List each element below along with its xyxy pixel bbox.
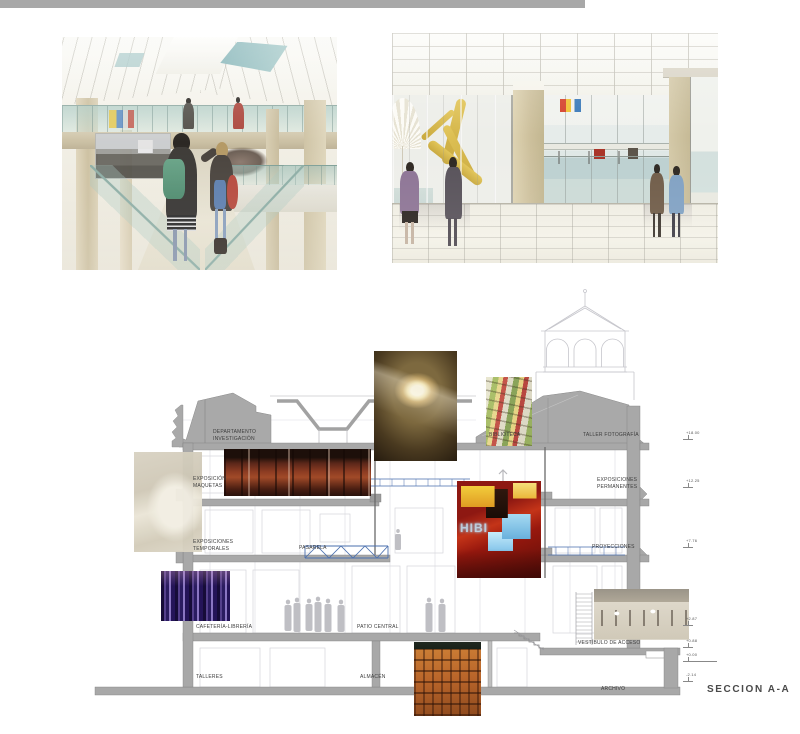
elevation-tick-icon bbox=[683, 483, 693, 488]
photo-exhibition-lightboxes: HIBI bbox=[457, 481, 541, 578]
label-archivo: ARCHIVO bbox=[601, 686, 625, 693]
tower-outline bbox=[536, 290, 634, 401]
label-departamento-investigacion: DEPARTAMENTO INVESTIGACIÓN bbox=[213, 429, 256, 442]
label-pasarela: PASARELA bbox=[299, 545, 327, 552]
photo-archive-shelving bbox=[414, 642, 481, 716]
elevation-marker-zero: +0.00 bbox=[686, 652, 717, 662]
label-exposiciones-permanentes: EXPOSICIONES PERMANENTES bbox=[597, 477, 637, 490]
elevation-tick-icon bbox=[683, 643, 693, 648]
label-almacen: ALMACÉN bbox=[360, 674, 386, 681]
vestibule-window bbox=[646, 651, 664, 658]
label-biblioteca: BIBLIOTECA bbox=[489, 432, 520, 439]
presentation-board: HIBI DEPARTAMENTO INVESTIGACIÓN BIBLIOTE… bbox=[0, 0, 800, 734]
label-cafeteria-libreria: CAFETERÍA-LIBRERÍA bbox=[196, 624, 252, 631]
photo-purple-crowd bbox=[161, 571, 230, 621]
label-taller-fotografia: TALLER FOTOGRAFÍA bbox=[583, 432, 639, 439]
elevation-tick-icon bbox=[683, 621, 693, 626]
elevation-marker: +12.25 bbox=[686, 478, 700, 488]
label-proyecciones: PROYECCIONES bbox=[592, 544, 635, 551]
elevation-tick-icon bbox=[683, 657, 717, 662]
exhibit-glow-letters: HIBI bbox=[460, 521, 488, 535]
elevation-marker: +7.76 bbox=[686, 538, 697, 548]
elevation-marker: +2.87 bbox=[686, 616, 697, 626]
photo-dome-oculus bbox=[374, 351, 457, 461]
label-exposicion-maquetas: EXPOSICIÓN MAQUETAS bbox=[193, 476, 226, 489]
elevation-tick-icon bbox=[683, 543, 693, 548]
section-title: SECCION A-A bbox=[707, 684, 790, 695]
elevation-marker: -2.14 bbox=[686, 672, 696, 682]
photo-red-gallery bbox=[224, 449, 371, 496]
photo-light-interior bbox=[134, 452, 202, 552]
elevation-tick-icon bbox=[683, 435, 693, 440]
label-talleres: TALLERES bbox=[196, 674, 223, 681]
elevation-marker: +0.88 bbox=[686, 638, 697, 648]
label-exposiciones-temporales: EXPOSICIONES TEMPORALES bbox=[193, 539, 233, 552]
right-staircase bbox=[576, 592, 592, 645]
label-vestibulo-acceso: VESTÍBULO DE ACCESO bbox=[578, 640, 640, 647]
label-patio-central: PATIO CENTRAL bbox=[357, 624, 399, 631]
photo-access-plaza bbox=[594, 589, 689, 640]
elevation-marker: +18.00 bbox=[686, 430, 700, 440]
elevation-tick-icon bbox=[683, 677, 693, 682]
